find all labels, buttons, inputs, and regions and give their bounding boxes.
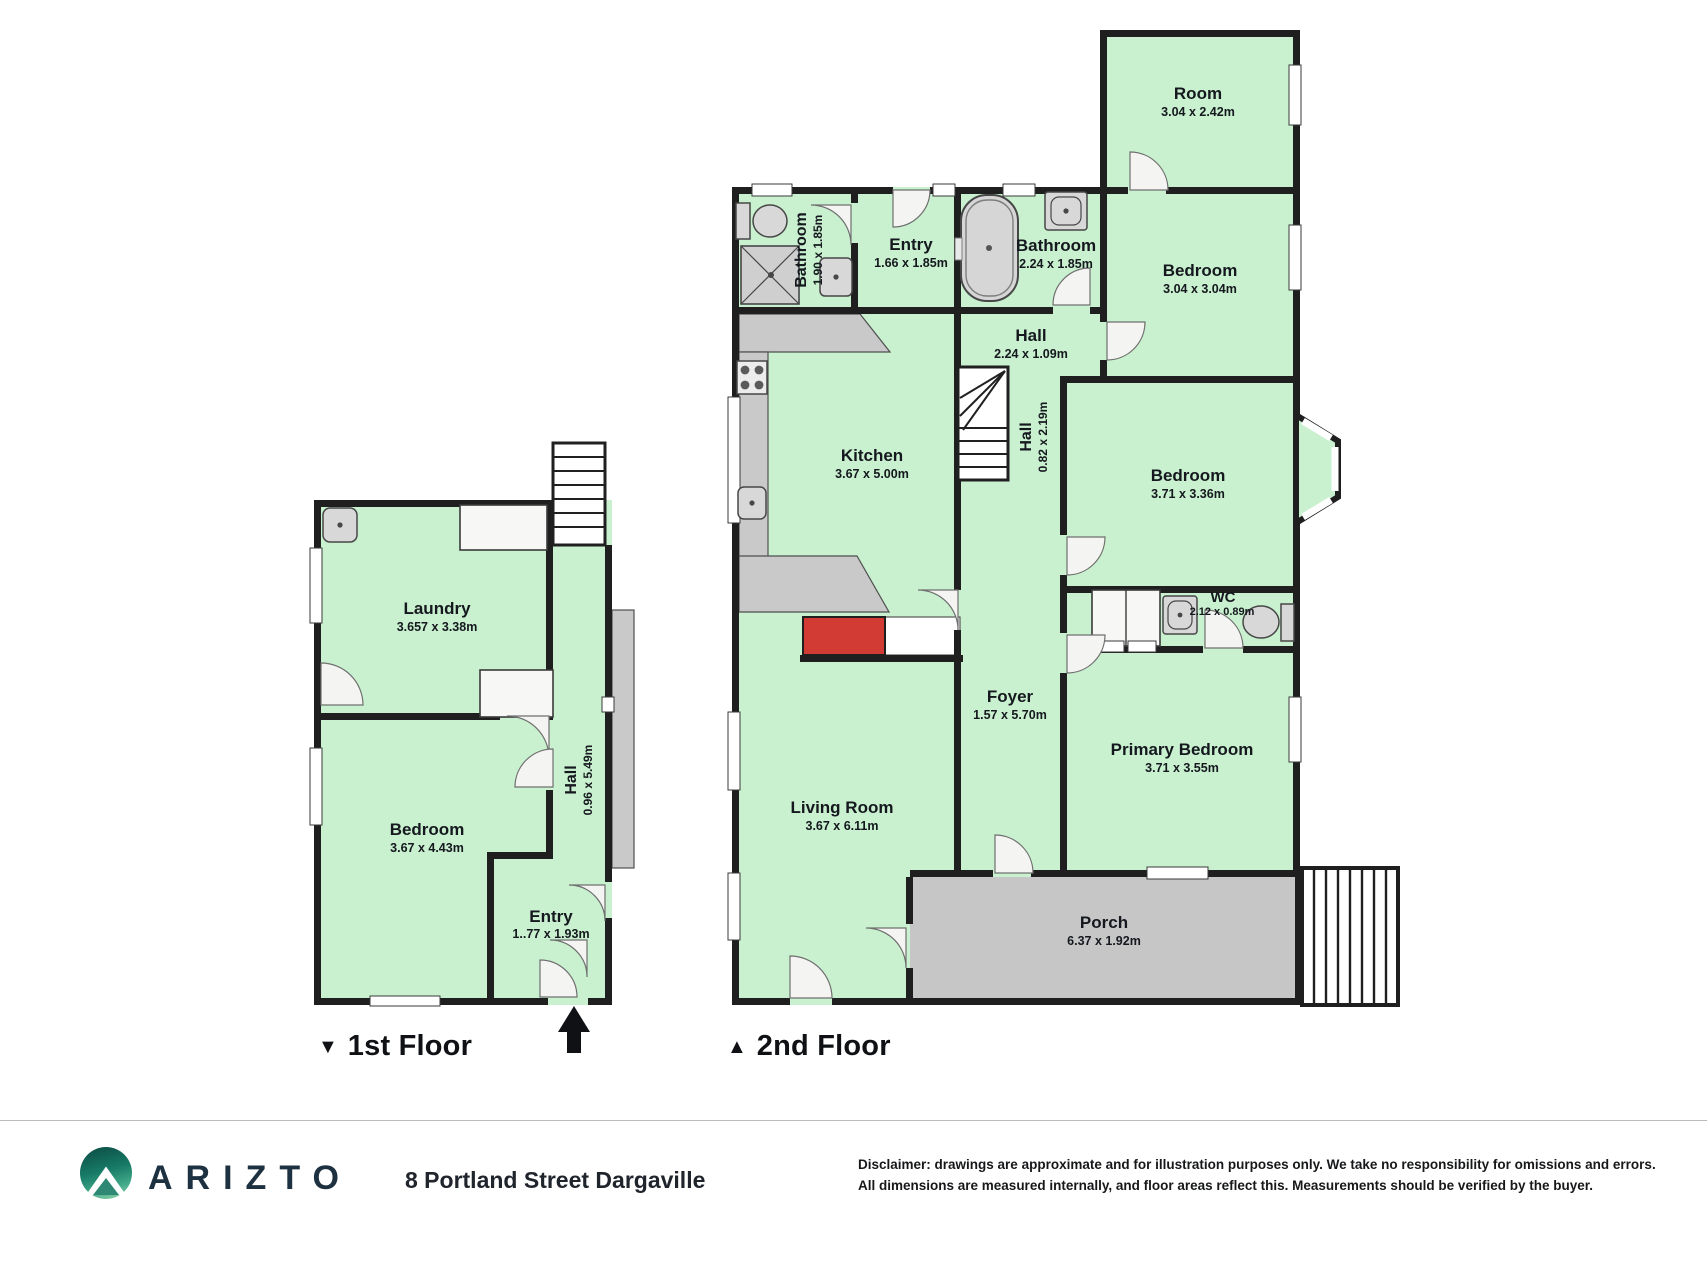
- floorplan-page: Laundry 3.657 x 3.38m Bedroom 3.67 x 4.4…: [0, 0, 1707, 1280]
- disclaimer-text: Disclaimer: drawings are approximate and…: [858, 1154, 1678, 1196]
- fireplace-highlight: [803, 617, 885, 655]
- room-dims-living-room: 3.67 x 6.11m: [806, 819, 879, 833]
- room-label-room: Room: [1174, 84, 1222, 103]
- closet-icon: [460, 505, 547, 550]
- room-label-entry-1f: Entry: [529, 907, 573, 926]
- room-label-hall-1f: Hall: [563, 765, 580, 794]
- window-icon: [370, 996, 440, 1006]
- window-icon: [1289, 697, 1301, 762]
- room-label-bedroom-304: Bedroom: [1163, 261, 1238, 280]
- room-dims-bathroom-small: 1.90 x 1.85m: [811, 215, 825, 286]
- room-label-kitchen: Kitchen: [841, 446, 903, 465]
- stairs-icon: [958, 367, 1008, 480]
- shower-icon: [741, 246, 799, 304]
- room-dims-room: 3.04 x 2.42m: [1161, 105, 1235, 119]
- deck-strip: [612, 610, 634, 868]
- room-dims-entry-2f: 1.66 x 1.85m: [874, 256, 948, 270]
- room-dims-hall-1f: 0.96 x 5.49m: [581, 745, 595, 816]
- window-icon: [728, 873, 740, 940]
- window-icon: [933, 184, 955, 196]
- room-dims-bedroom-1f: 3.67 x 4.43m: [390, 841, 464, 855]
- property-address: 8 Portland Street Dargaville: [405, 1167, 705, 1194]
- brand-name: ARIZTO: [148, 1159, 352, 1198]
- room-label-porch: Porch: [1080, 913, 1128, 932]
- window-icon: [1289, 225, 1301, 290]
- first-floor-title: ▼ 1st Floor: [318, 1030, 472, 1063]
- room-dims-laundry: 3.657 x 3.38m: [397, 620, 478, 634]
- room-label-foyer: Foyer: [987, 687, 1034, 706]
- room-dims-hall-upper: 2.24 x 1.09m: [994, 347, 1068, 361]
- bathtub-icon: [955, 195, 1018, 301]
- up-triangle-icon: ▲: [727, 1037, 747, 1057]
- room-dims-porch: 6.37 x 1.92m: [1067, 934, 1141, 948]
- room-dims-bathroom-main: 2.24 x 1.85m: [1019, 257, 1093, 271]
- down-triangle-icon: ▼: [318, 1037, 338, 1057]
- room-label-wc: WC: [1211, 589, 1236, 606]
- window-icon: [1147, 867, 1208, 879]
- second-floor-plan: Room 3.04 x 2.42m Bathroom 1.90 x 1.85m …: [728, 30, 1398, 1005]
- footer: ARIZTO 8 Portland Street Dargaville Disc…: [0, 1120, 1707, 1280]
- window-icon: [310, 548, 322, 623]
- room-label-primary-bedroom: Primary Bedroom: [1111, 740, 1254, 759]
- arizto-logo-icon: [80, 1147, 132, 1199]
- window-icon: [752, 184, 792, 196]
- window-icon: [728, 712, 740, 790]
- second-floor-title-text: 2nd Floor: [757, 1030, 891, 1063]
- entry-arrow-icon: [558, 1006, 590, 1053]
- fireplace-alcove: [885, 617, 960, 655]
- porch-steps-icon: [1302, 868, 1398, 1005]
- laundry-sink-icon: [323, 508, 357, 542]
- window-icon: [310, 748, 322, 825]
- room-dims-wc: 2.12 x 0.89m: [1190, 606, 1255, 618]
- disclaimer-line-2: All dimensions are measured internally, …: [858, 1175, 1678, 1196]
- room-dims-bedroom-371: 3.71 x 3.36m: [1151, 487, 1225, 501]
- window-icon: [1003, 184, 1035, 196]
- window-icon: [602, 697, 614, 712]
- stove-icon: [737, 361, 767, 394]
- room-label-living-room: Living Room: [791, 798, 894, 817]
- closet-icon: [480, 670, 553, 717]
- sink-icon: [1045, 192, 1087, 230]
- stairs-icon: [553, 443, 605, 545]
- floorplan-drawing: Laundry 3.657 x 3.38m Bedroom 3.67 x 4.4…: [0, 0, 1707, 1115]
- room-dims-hall-stair: 0.82 x 2.19m: [1036, 402, 1050, 473]
- toilet-icon: [736, 203, 787, 239]
- first-floor-plan: Laundry 3.657 x 3.38m Bedroom 3.67 x 4.4…: [310, 443, 634, 1006]
- room-label-entry-2f: Entry: [889, 235, 933, 254]
- room-dims-bedroom-304: 3.04 x 3.04m: [1163, 282, 1237, 296]
- room-dims-kitchen: 3.67 x 5.00m: [835, 467, 909, 481]
- sink-icon: [738, 487, 766, 519]
- room-label-laundry: Laundry: [403, 599, 471, 618]
- room-label-bedroom-1f: Bedroom: [390, 820, 465, 839]
- second-floor-title: ▲ 2nd Floor: [727, 1030, 891, 1063]
- disclaimer-line-1: Disclaimer: drawings are approximate and…: [858, 1154, 1678, 1175]
- room-label-hall-upper: Hall: [1015, 326, 1046, 345]
- room-label-bathroom-main: Bathroom: [1016, 236, 1096, 255]
- room-label-bedroom-371: Bedroom: [1151, 466, 1226, 485]
- room-label-bathroom-small: Bathroom: [793, 212, 810, 288]
- room-dims-primary-bedroom: 3.71 x 3.55m: [1145, 761, 1219, 775]
- window-icon: [1289, 65, 1301, 125]
- room-label-hall-stair: Hall: [1018, 422, 1035, 451]
- first-floor-title-text: 1st Floor: [348, 1030, 472, 1063]
- room-dims-foyer: 1.57 x 5.70m: [973, 708, 1047, 722]
- room-dims-entry-1f: 1..77 x 1.93m: [512, 927, 589, 941]
